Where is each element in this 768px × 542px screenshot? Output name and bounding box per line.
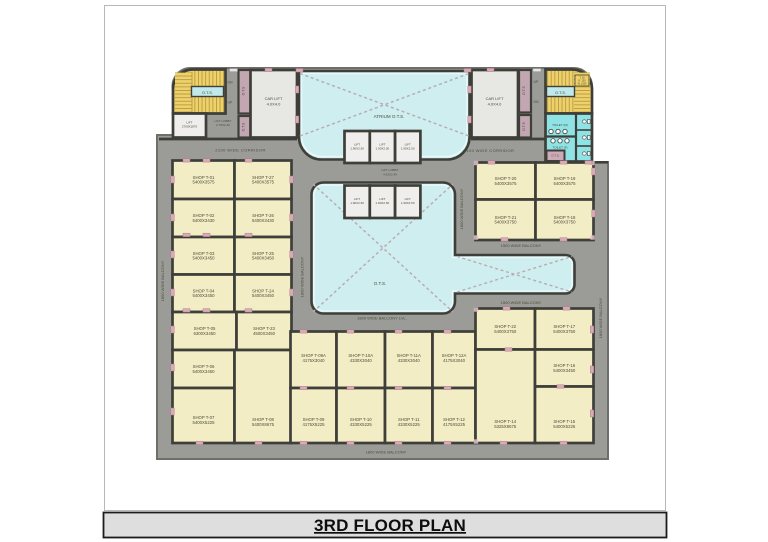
- svg-text:UP: UP: [534, 80, 540, 84]
- svg-text:1.90X2.50: 1.90X2.50: [401, 147, 415, 151]
- svg-text:5400X3430: 5400X3430: [193, 218, 216, 223]
- svg-text:O.T.S.: O.T.S.: [551, 154, 560, 158]
- svg-text:5400X3750: 5400X3750: [554, 220, 577, 225]
- svg-text:1500 WIDE BALCONY: 1500 WIDE BALCONY: [501, 300, 542, 305]
- svg-text:ATRIUM O.T.S.: ATRIUM O.T.S.: [374, 114, 405, 119]
- svg-text:O.T.S.: O.T.S.: [202, 90, 213, 95]
- svg-text:1500 WIDE BALCONY: 1500 WIDE BALCONY: [501, 243, 542, 248]
- svg-text:1.90X2.50: 1.90X2.50: [401, 201, 415, 205]
- svg-text:4330X3040: 4330X3040: [350, 358, 373, 363]
- svg-text:4175X5225: 4175X5225: [443, 422, 466, 427]
- svg-text:5400X3575: 5400X3575: [495, 181, 518, 186]
- svg-text:4175X3040: 4175X3040: [443, 358, 466, 363]
- svg-text:4175X5225: 4175X5225: [303, 422, 326, 427]
- svg-text:CAR LIFT: CAR LIFT: [486, 96, 504, 101]
- svg-text:4330X5225: 4330X5225: [350, 422, 373, 427]
- svg-text:5400X3450: 5400X3450: [193, 293, 216, 298]
- svg-text:O.T.S: O.T.S: [242, 86, 246, 95]
- svg-text:4330X3040: 4330X3040: [398, 358, 421, 363]
- svg-text:5400X3450: 5400X3450: [193, 369, 216, 374]
- svg-text:O.T.S: O.T.S: [242, 122, 246, 131]
- svg-text:1.90X2.50: 1.90X2.50: [376, 147, 390, 151]
- svg-text:3RD FLOOR PLAN: 3RD FLOOR PLAN: [314, 516, 466, 535]
- svg-text:1800 WIDE BALCONY: 1800 WIDE BALCONY: [366, 450, 407, 455]
- svg-text:UP: UP: [228, 101, 234, 105]
- svg-text:2100 WIDE CORRIDOR: 2100 WIDE CORRIDOR: [215, 148, 266, 153]
- svg-text:O.T.S.: O.T.S.: [555, 90, 566, 95]
- svg-text:5400X3450: 5400X3450: [553, 368, 576, 373]
- svg-text:6300X3450: 6300X3450: [194, 331, 217, 336]
- svg-text:2100 WIDE CORRIDOR: 2100 WIDE CORRIDOR: [464, 148, 515, 153]
- svg-text:4.65X2.49: 4.65X2.49: [383, 173, 397, 177]
- svg-text:5400X3750: 5400X3750: [494, 329, 517, 334]
- svg-text:1800 WIDE BALCONY: 1800 WIDE BALCONY: [598, 297, 603, 338]
- svg-text:1.90X2.50: 1.90X2.50: [350, 201, 364, 205]
- svg-text:1800 WIDE BALCONY: 1800 WIDE BALCONY: [459, 188, 464, 229]
- svg-text:5400X3430: 5400X3430: [252, 218, 275, 223]
- svg-text:1.90X2.50: 1.90X2.50: [350, 147, 364, 151]
- svg-text:2700X1870: 2700X1870: [182, 125, 198, 129]
- svg-text:5400X3750: 5400X3750: [553, 329, 576, 334]
- svg-text:4330X5225: 4330X5225: [398, 422, 421, 427]
- svg-text:1.90X2.50: 1.90X2.50: [376, 201, 390, 205]
- svg-text:5400X3575: 5400X3575: [193, 180, 216, 185]
- svg-text:LIFT LOBBY: LIFT LOBBY: [382, 168, 399, 172]
- svg-text:O.T.S: O.T.S: [522, 85, 526, 94]
- svg-text:CAR LIFT: CAR LIFT: [265, 96, 283, 101]
- svg-text:1800 WIDE BALCONY: 1800 WIDE BALCONY: [300, 256, 305, 297]
- svg-text:1800 WIDE BALCONY: 1800 WIDE BALCONY: [160, 260, 165, 301]
- svg-text:5400X3750: 5400X3750: [495, 220, 518, 225]
- svg-text:4175X3040: 4175X3040: [303, 358, 326, 363]
- svg-text:TOILET (F): TOILET (F): [552, 146, 567, 150]
- svg-text:W. 1500: W. 1500: [578, 83, 587, 86]
- svg-text:O.T.S: O.T.S: [522, 121, 526, 130]
- svg-text:4.0X4.0: 4.0X4.0: [267, 102, 282, 107]
- svg-text:5400X3575: 5400X3575: [554, 181, 577, 186]
- svg-text:DN: DN: [534, 100, 540, 104]
- svg-text:5400X8675: 5400X8675: [252, 422, 275, 427]
- svg-text:5400X3575: 5400X3575: [252, 180, 275, 185]
- svg-text:O.T.S.: O.T.S.: [374, 281, 387, 286]
- svg-text:5400X5225: 5400X5225: [553, 424, 576, 429]
- svg-text:TOILET (M): TOILET (M): [552, 123, 568, 127]
- svg-text:2.70X2.40: 2.70X2.40: [216, 123, 230, 127]
- svg-text:5400X3450: 5400X3450: [193, 256, 216, 261]
- svg-text:5400X5225: 5400X5225: [193, 420, 216, 425]
- svg-text:4.0X4.0: 4.0X4.0: [488, 102, 503, 107]
- svg-text:5400X3450: 5400X3450: [252, 256, 275, 261]
- svg-text:1800 WIDE BALCONY LVL.: 1800 WIDE BALCONY LVL.: [357, 316, 407, 321]
- svg-text:5325X8675: 5325X8675: [494, 424, 517, 429]
- svg-text:5400X3450: 5400X3450: [252, 293, 275, 298]
- svg-text:DN: DN: [228, 81, 234, 85]
- svg-text:4500X3450: 4500X3450: [253, 331, 276, 336]
